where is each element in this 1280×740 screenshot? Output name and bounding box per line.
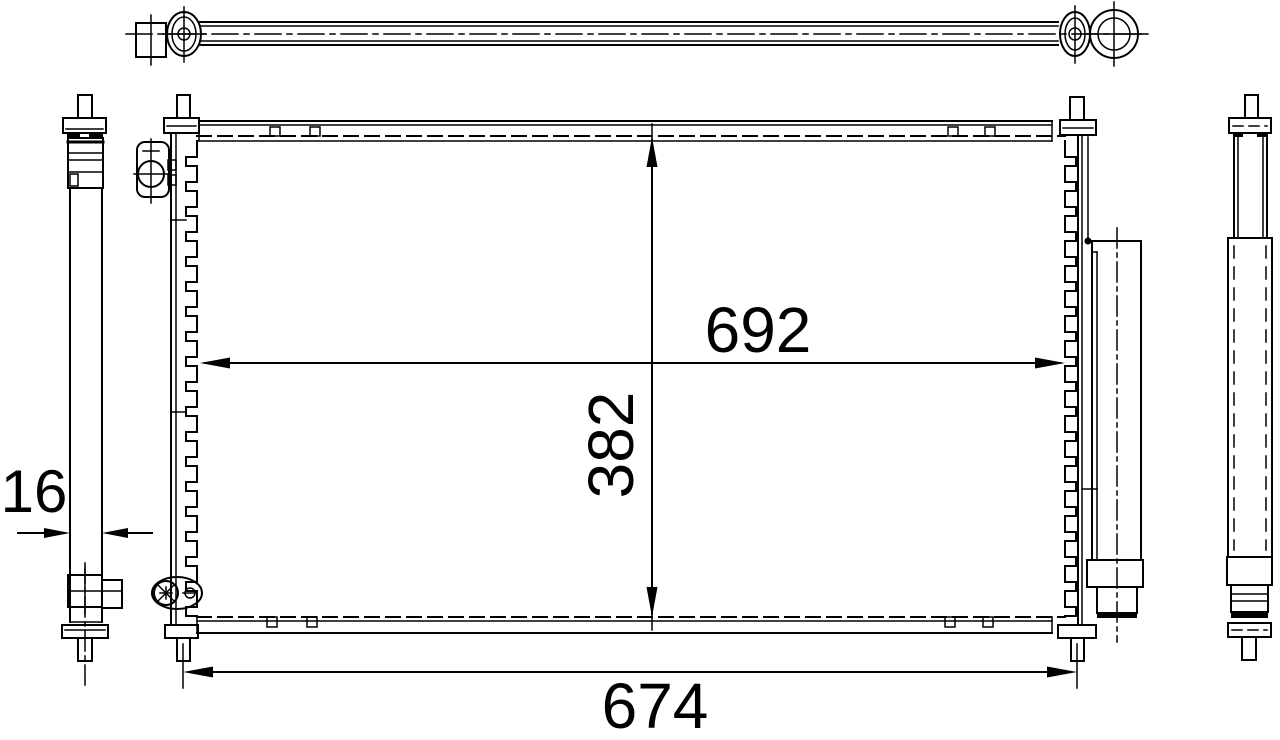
right-side-ribbed-end	[1231, 585, 1268, 618]
left-side-bottom-block	[68, 568, 122, 622]
top-clip	[948, 127, 958, 136]
right-side-drier-body	[1228, 238, 1272, 557]
left-side-view: 16	[1, 95, 152, 688]
dim692-arrow-right	[1035, 358, 1065, 369]
drier-collar	[1087, 560, 1143, 587]
front-bottom-strip	[197, 617, 1065, 633]
dim16-label: 16	[1, 458, 68, 525]
dim674-label: 674	[602, 670, 709, 740]
bottom-clip	[267, 617, 277, 627]
front-right-bottom-flange	[1058, 625, 1096, 638]
dim382-arrow-bottom	[647, 587, 658, 617]
dimension-382: 382	[575, 124, 658, 630]
dim16-arrow-left	[44, 528, 70, 538]
left-side-top-flange	[63, 118, 106, 133]
front-left-bottom-flange	[165, 625, 198, 638]
left-side-body	[68, 188, 103, 622]
front-receiver-drier	[1082, 137, 1143, 642]
front-top-strip	[197, 121, 1065, 141]
top-view	[126, 2, 1148, 66]
right-side-top-pin	[1245, 95, 1258, 118]
dim382-label: 382	[575, 392, 647, 499]
front-left-top-pin	[177, 95, 190, 118]
dimension-692: 692	[200, 294, 1065, 369]
dim692-label: 692	[705, 294, 812, 366]
left-side-top-pin	[78, 95, 92, 118]
dim674-arrow-right	[1047, 667, 1077, 678]
front-left-tank-serration	[186, 141, 197, 617]
front-left-bottom-fitting	[152, 577, 202, 609]
bottom-clip	[983, 617, 993, 627]
dim674-arrow-left	[183, 667, 213, 678]
technical-drawing-canvas: 16	[0, 0, 1280, 740]
right-side-bottom-pin	[1242, 637, 1256, 660]
top-clip	[985, 127, 995, 136]
bottom-clip	[945, 617, 955, 627]
front-right-tank	[1058, 97, 1096, 661]
top-view-drier-cap	[1084, 2, 1146, 66]
left-side-header-bands	[68, 138, 103, 188]
right-side-collar	[1227, 557, 1272, 585]
front-view	[134, 95, 1143, 661]
dimension-674: 674	[183, 644, 1077, 740]
dim16-arrow-right	[102, 528, 128, 538]
top-view-tube	[126, 22, 1148, 45]
front-left-bracket	[134, 139, 176, 203]
top-clip	[310, 127, 320, 136]
front-right-tank-serration	[1065, 141, 1076, 617]
right-side-upper-tube	[1234, 133, 1267, 238]
dim692-arrow-left	[200, 358, 230, 369]
front-right-top-pin	[1070, 97, 1084, 120]
top-clip	[270, 127, 280, 136]
bottom-clip	[307, 617, 317, 627]
right-side-view	[1227, 95, 1272, 660]
dimension-16: 16	[1, 458, 152, 538]
